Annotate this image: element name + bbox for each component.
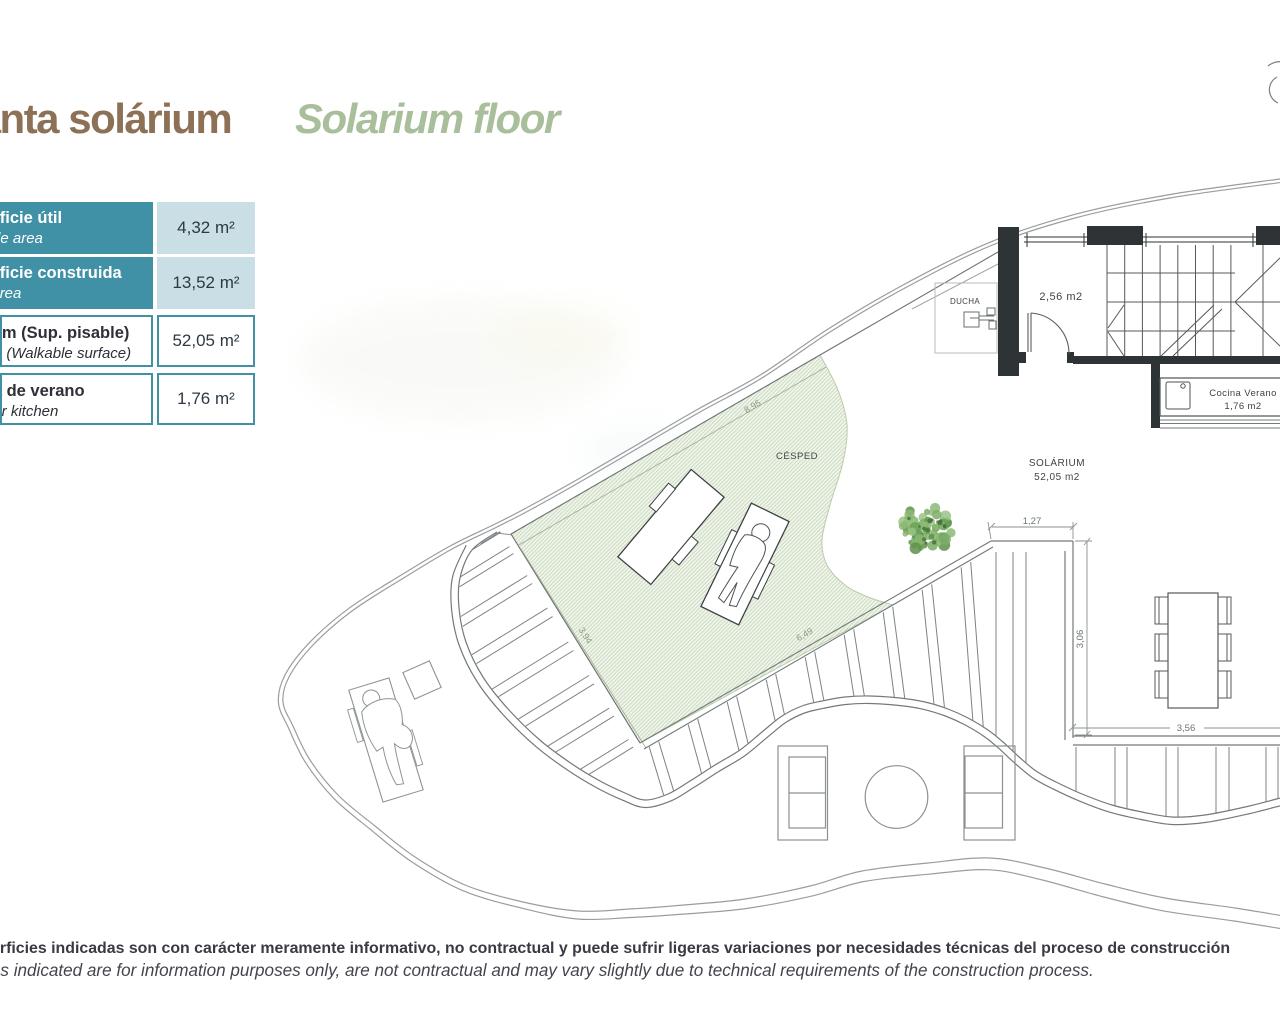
svg-text:DUCHA: DUCHA	[950, 297, 980, 306]
svg-text:2,56 m2: 2,56 m2	[1039, 291, 1082, 303]
svg-text:SOLÁRIUM: SOLÁRIUM	[1029, 456, 1085, 469]
svg-text:3,56: 3,56	[1177, 723, 1196, 734]
svg-text:CÉSPED: CÉSPED	[776, 451, 818, 462]
svg-text:Cocina Verano: Cocina Verano	[1209, 388, 1277, 399]
svg-text:1,27: 1,27	[1023, 516, 1042, 527]
svg-text:3,06: 3,06	[1075, 630, 1086, 649]
svg-text:1,76 m2: 1,76 m2	[1224, 401, 1261, 412]
svg-text:52,05 m2: 52,05 m2	[1034, 472, 1080, 483]
